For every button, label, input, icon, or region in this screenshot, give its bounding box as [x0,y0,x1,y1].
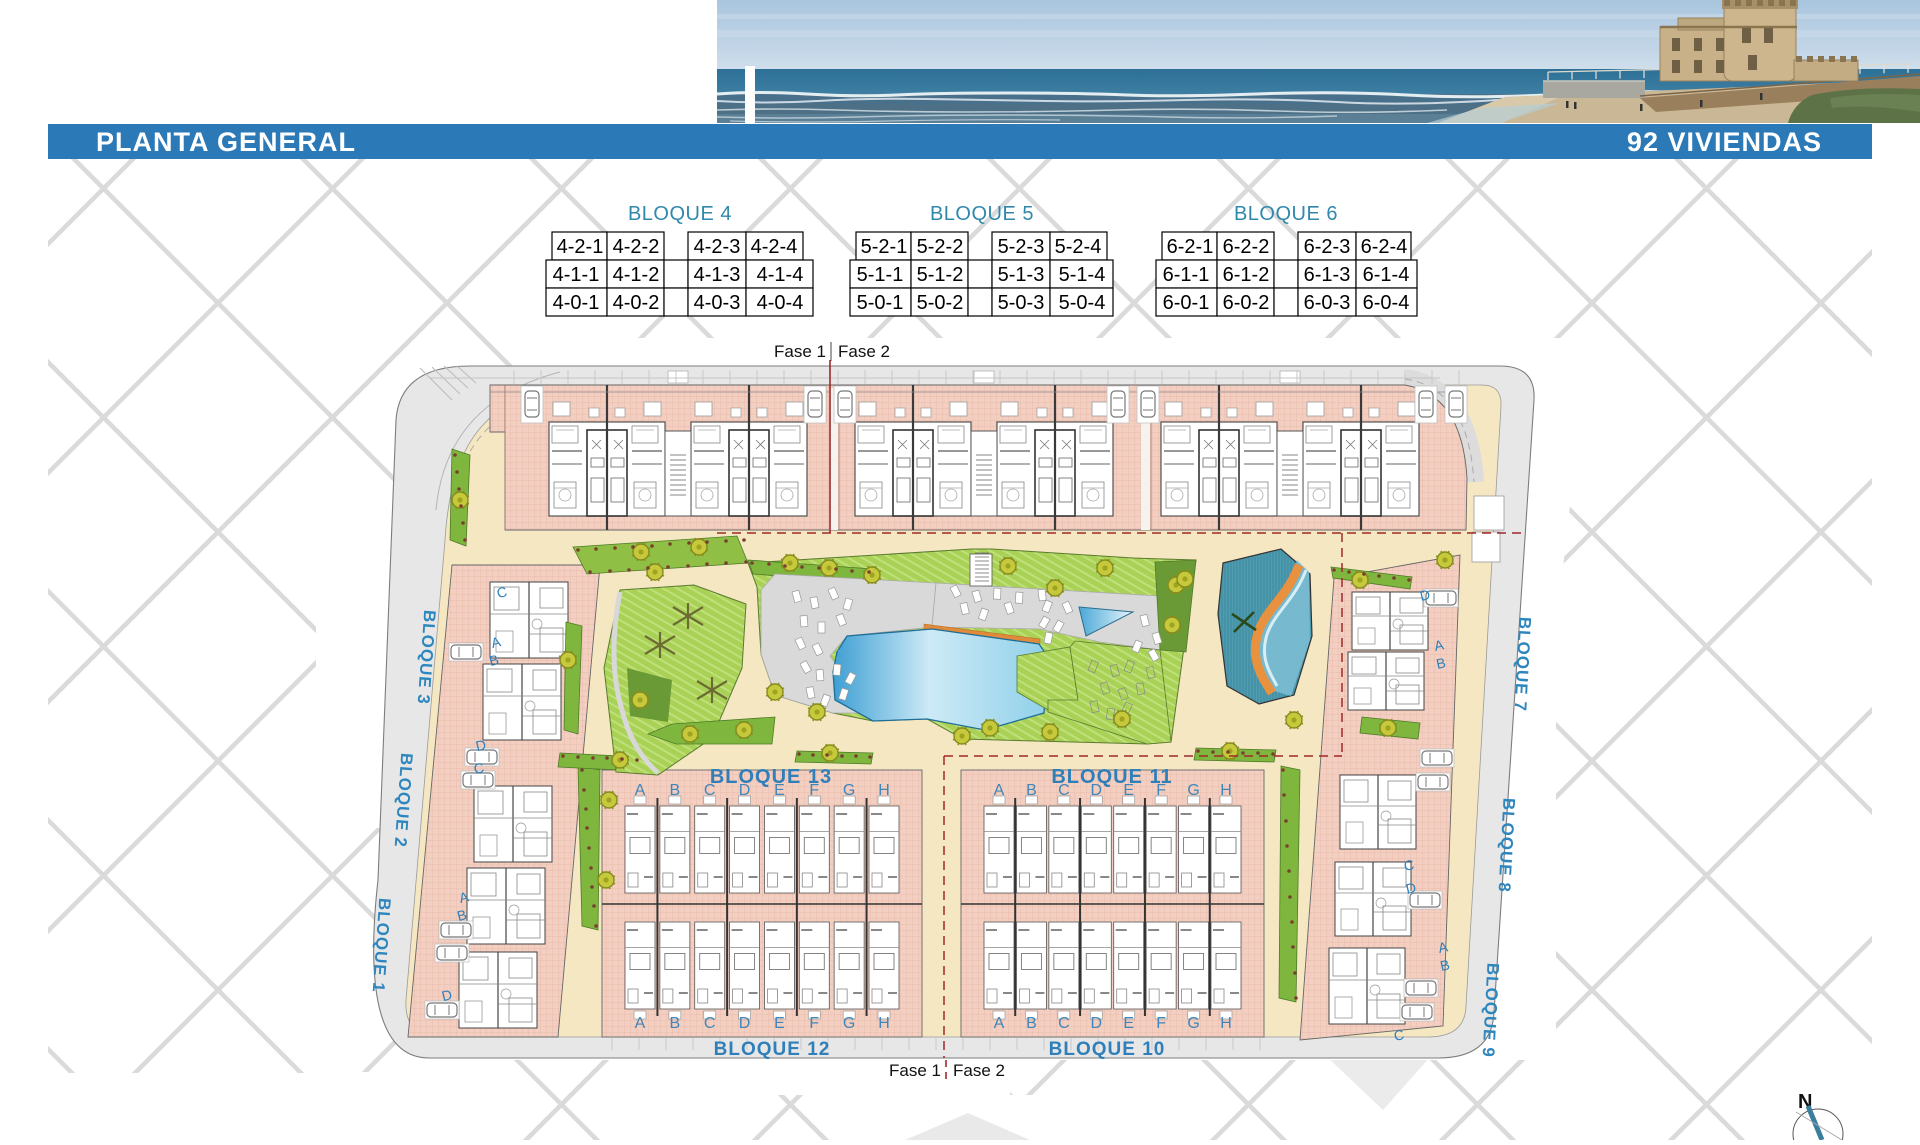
svg-text:4-0-2: 4-0-2 [613,292,660,314]
svg-text:6-2-4: 6-2-4 [1361,236,1408,258]
svg-text:BLOQUE 13: BLOQUE 13 [710,766,832,788]
svg-text:5-0-4: 5-0-4 [1059,292,1106,314]
svg-text:H: H [1220,1015,1232,1032]
svg-text:BLOQUE 4: BLOQUE 4 [628,203,732,225]
svg-text:H: H [1220,782,1232,799]
svg-text:5-2-4: 5-2-4 [1055,236,1102,258]
svg-text:A: A [635,1015,646,1032]
svg-text:5-1-1: 5-1-1 [857,264,904,286]
svg-text:5-2-1: 5-2-1 [861,236,908,258]
svg-text:BLOQUE 5: BLOQUE 5 [930,203,1034,225]
svg-text:6-1-1: 6-1-1 [1163,264,1210,286]
svg-text:6-0-1: 6-0-1 [1163,292,1210,314]
svg-text:D: D [739,1015,751,1032]
svg-text:4-0-1: 4-0-1 [553,292,600,314]
svg-text:C: C [704,1015,716,1032]
svg-text:BLOQUE 12: BLOQUE 12 [714,1039,831,1060]
svg-text:4-2-3: 4-2-3 [694,236,741,258]
svg-text:6-2-3: 6-2-3 [1304,236,1351,258]
svg-text:B: B [1026,1015,1037,1032]
svg-text:G: G [843,1015,855,1032]
svg-text:4-1-1: 4-1-1 [553,264,600,286]
svg-text:Fase 1: Fase 1 [889,1061,941,1080]
svg-text:BLOQUE 11: BLOQUE 11 [1051,766,1172,788]
svg-text:E: E [1123,1015,1134,1032]
svg-text:F: F [1156,1015,1166,1032]
svg-text:6-2-2: 6-2-2 [1223,236,1270,258]
svg-text:B: B [670,782,681,799]
svg-text:92 VIVIENDAS: 92 VIVIENDAS [1627,127,1822,157]
svg-text:G: G [1187,782,1199,799]
svg-text:BLOQUE 6: BLOQUE 6 [1234,203,1338,225]
svg-text:6-1-3: 6-1-3 [1304,264,1351,286]
svg-text:G: G [1187,1015,1199,1032]
svg-text:4-2-4: 4-2-4 [751,236,798,258]
svg-text:5-1-2: 5-1-2 [917,264,964,286]
svg-text:BLOQUE 10: BLOQUE 10 [1049,1039,1166,1060]
svg-text:5-0-1: 5-0-1 [857,292,904,314]
svg-text:C: C [1058,1015,1070,1032]
svg-text:6-2-1: 6-2-1 [1167,236,1214,258]
svg-text:F: F [809,1015,819,1032]
svg-text:6-0-3: 6-0-3 [1304,292,1351,314]
svg-text:Fase 1: Fase 1 [774,342,826,361]
svg-text:A: A [994,782,1005,799]
svg-text:5-2-2: 5-2-2 [917,236,964,258]
svg-text:A: A [635,782,646,799]
svg-text:6-0-2: 6-0-2 [1223,292,1270,314]
svg-text:D: D [1091,1015,1103,1032]
svg-text:4-1-3: 4-1-3 [694,264,741,286]
svg-text:5-2-3: 5-2-3 [998,236,1045,258]
svg-text:G: G [843,782,855,799]
svg-text:PLANTA GENERAL: PLANTA GENERAL [96,127,356,157]
svg-text:B: B [1026,782,1037,799]
svg-text:4-1-4: 4-1-4 [757,264,804,286]
svg-text:6-1-4: 6-1-4 [1363,264,1410,286]
svg-text:6-0-4: 6-0-4 [1363,292,1410,314]
svg-text:4-0-4: 4-0-4 [757,292,804,314]
svg-text:4-1-2: 4-1-2 [613,264,660,286]
svg-text:4-0-3: 4-0-3 [694,292,741,314]
svg-text:5-1-4: 5-1-4 [1059,264,1106,286]
svg-text:Fase 2: Fase 2 [953,1061,1005,1080]
svg-text:5-1-3: 5-1-3 [998,264,1045,286]
svg-text:5-0-3: 5-0-3 [998,292,1045,314]
svg-text:6-1-2: 6-1-2 [1223,264,1270,286]
svg-text:B: B [670,1015,681,1032]
svg-text:H: H [878,782,890,799]
svg-text:5-0-2: 5-0-2 [917,292,964,314]
svg-text:4-2-2: 4-2-2 [613,236,660,258]
svg-text:E: E [774,1015,785,1032]
svg-text:4-2-1: 4-2-1 [557,236,604,258]
svg-text:H: H [878,1015,890,1032]
svg-text:A: A [994,1015,1005,1032]
svg-text:Fase 2: Fase 2 [838,342,890,361]
